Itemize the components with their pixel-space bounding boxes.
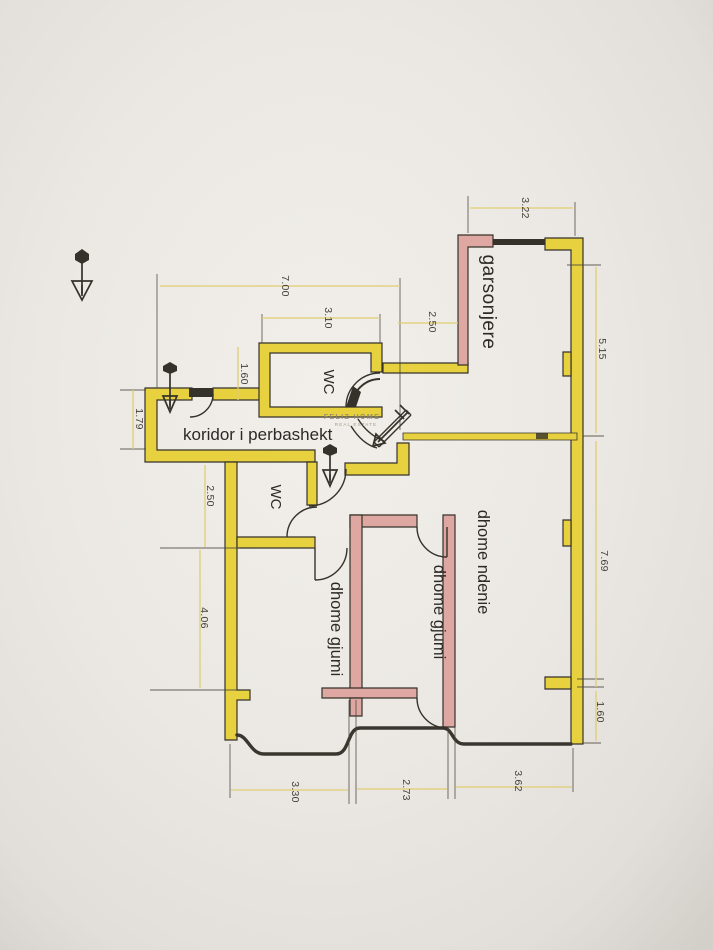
garsonjere-window: [493, 239, 545, 245]
floor-plan-drawing: garsonjere WC koridor i perbashekt WC dh…: [0, 0, 713, 950]
dim-label-bottom-left: 3.30: [289, 781, 301, 803]
room-label-dhome-gjumi-center: dhome gjumi: [430, 565, 448, 659]
wall-right-pillar-lower: [563, 520, 571, 546]
room-label-wc-top: WC: [320, 370, 337, 395]
dim-label-right-lower: 1.60: [594, 701, 606, 723]
dim-label-right-middle: 7.69: [598, 550, 610, 572]
watermark-line1: FELIZ HOME: [324, 414, 380, 421]
wall-right-tee: [545, 677, 571, 689]
wall-ndenie-top-thin: [403, 433, 577, 440]
wall-garsonjere-bottom: [383, 363, 468, 373]
watermark-line2: REAL ESTATE: [335, 422, 377, 427]
dim-label-wc-top-width: 3.10: [322, 307, 334, 329]
room-label-wc-bottom: WC: [267, 485, 284, 510]
wall-wc-bottom-right: [307, 462, 317, 505]
wall-gjumi-bottom: [322, 688, 417, 698]
wall-gjumi-left: [350, 515, 362, 698]
dim-label-left-lower: 4.06: [198, 607, 210, 629]
room-label-garsonjere: garsonjere: [478, 255, 499, 350]
dim-label-bottom-middle: 2.73: [400, 779, 412, 801]
room-label-koridor: koridor i perbashekt: [183, 425, 333, 444]
dim-label-garsonjere-left: 2.50: [426, 311, 438, 333]
dim-label-wc-top-left: 1.60: [238, 363, 250, 385]
room-label-dhome-gjumi-left: dhome gjumi: [327, 582, 345, 676]
dim-label-left-upper: 2.50: [204, 485, 216, 507]
wall-right-pillar-upper: [563, 352, 571, 376]
door-leaf-koridor-entrance: [189, 388, 213, 397]
room-label-dhome-ndenie: dhome ndenie: [474, 510, 492, 615]
wall-tick-mark: [536, 433, 548, 439]
dim-label-entrance-left: 1.79: [133, 408, 145, 430]
dim-label-top-width: 7.00: [279, 275, 291, 297]
dim-label-bottom-right: 3.62: [512, 770, 524, 792]
wall-wc-bottom-bottom: [237, 537, 315, 548]
floor-plan-photo: garsonjere WC koridor i perbashekt WC dh…: [0, 0, 713, 950]
dim-label-right-upper: 5.15: [596, 338, 608, 360]
dim-label-garsonjere-top: 3.22: [519, 197, 531, 219]
